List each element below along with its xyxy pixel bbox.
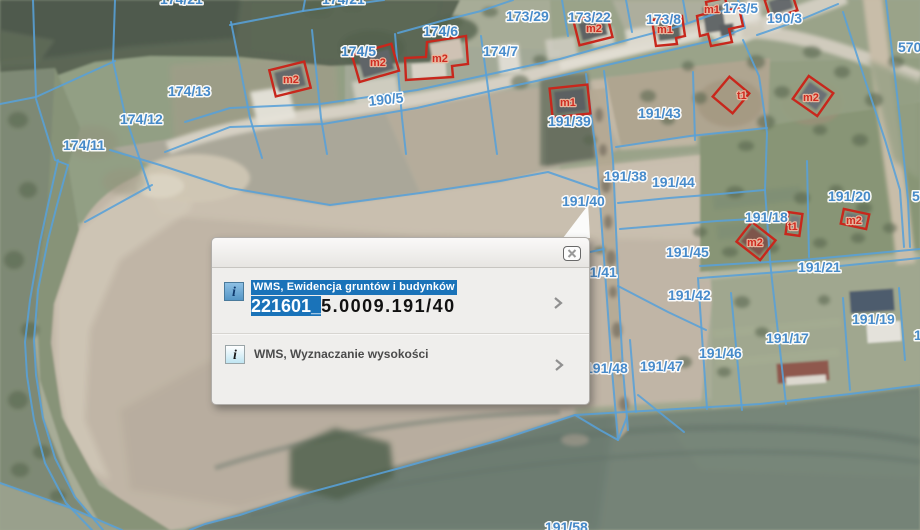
svg-text:t1: t1: [788, 221, 798, 233]
svg-text:174/21: 174/21: [322, 0, 365, 7]
svg-text:191/38: 191/38: [604, 168, 647, 184]
svg-text:m2: m2: [803, 92, 819, 104]
svg-text:174/12: 174/12: [120, 111, 163, 127]
svg-text:191/40: 191/40: [562, 193, 605, 209]
svg-text:173/22: 173/22: [568, 9, 611, 25]
svg-text:191/17: 191/17: [766, 330, 809, 346]
svg-text:191/44: 191/44: [652, 174, 695, 190]
svg-text:1: 1: [914, 327, 920, 343]
svg-text:191/48: 191/48: [585, 360, 628, 376]
svg-text:191/42: 191/42: [668, 287, 711, 303]
svg-text:570: 570: [898, 39, 920, 55]
svg-text:t1: t1: [737, 90, 747, 102]
svg-text:5: 5: [912, 188, 920, 204]
svg-text:191/45: 191/45: [666, 244, 709, 260]
svg-text:173/5: 173/5: [723, 0, 758, 16]
svg-text:m1: m1: [560, 97, 576, 109]
svg-text:191/46: 191/46: [699, 345, 742, 361]
svg-text:191/18: 191/18: [745, 209, 788, 225]
svg-text:174/6: 174/6: [423, 23, 458, 39]
svg-text:191/19: 191/19: [852, 311, 895, 327]
svg-text:174/11: 174/11: [63, 137, 105, 153]
svg-text:174/13: 174/13: [168, 83, 211, 99]
svg-text:190/3: 190/3: [767, 10, 802, 26]
svg-text:191/47: 191/47: [640, 358, 683, 374]
svg-text:m2: m2: [747, 237, 763, 249]
svg-text:191/39: 191/39: [548, 113, 591, 129]
svg-text:173/29: 173/29: [506, 8, 549, 24]
svg-text:174/7: 174/7: [483, 43, 518, 59]
svg-text:m2: m2: [432, 53, 448, 65]
svg-text:191/21: 191/21: [798, 259, 841, 275]
svg-text:191/20: 191/20: [828, 188, 871, 204]
svg-text:m1: m1: [704, 4, 720, 16]
svg-text:174/21: 174/21: [160, 0, 203, 7]
svg-text:m2: m2: [283, 74, 299, 86]
svg-text:m2: m2: [846, 215, 862, 227]
svg-text:191/43: 191/43: [638, 105, 681, 121]
svg-text:174/5: 174/5: [341, 43, 376, 59]
svg-text:191/58: 191/58: [545, 519, 588, 530]
svg-text:173/8: 173/8: [646, 11, 681, 27]
